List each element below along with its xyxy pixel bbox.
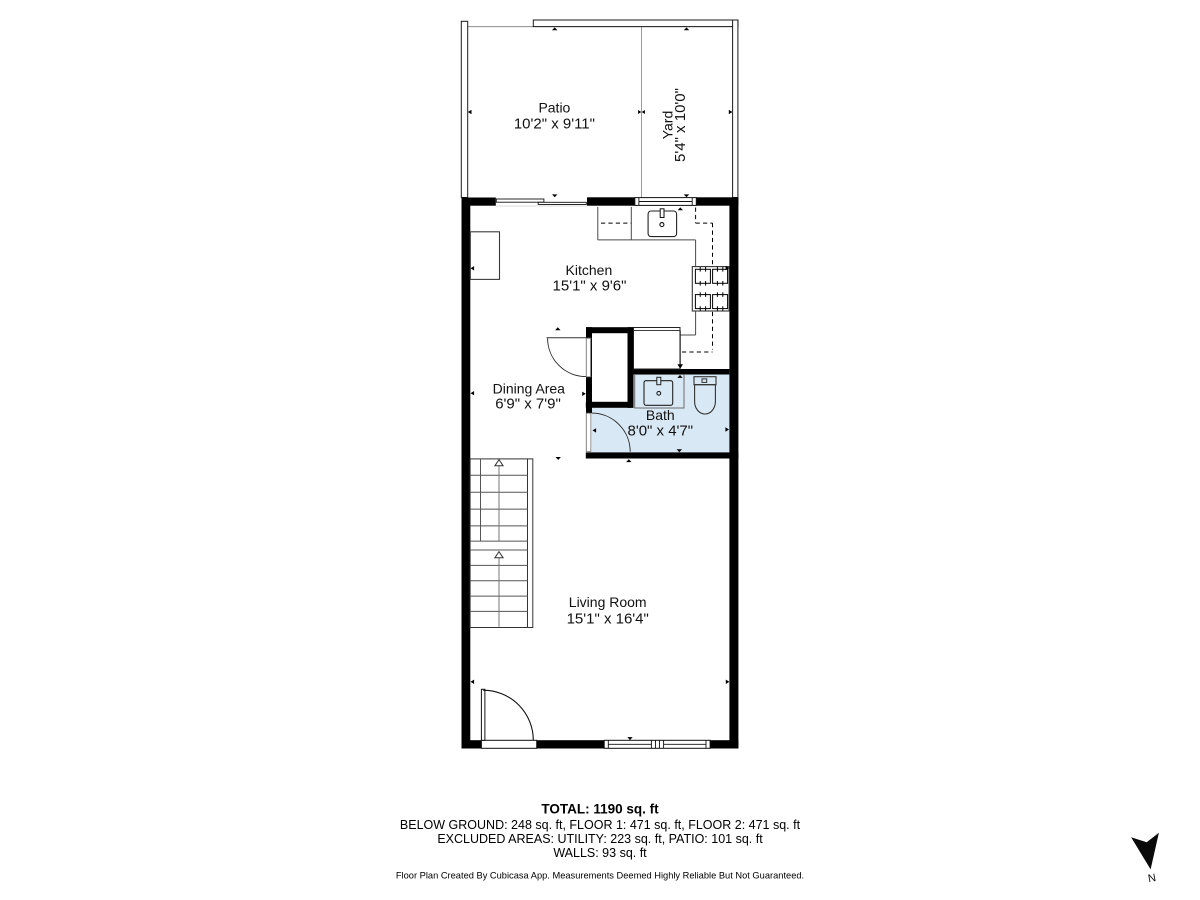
svg-text:N: N [1147, 872, 1157, 885]
svg-text:Dining Area: Dining Area [493, 381, 566, 397]
svg-text:EXCLUDED AREAS: UTILITY: 223 s: EXCLUDED AREAS: UTILITY: 223 sq. ft, PAT… [437, 832, 763, 846]
svg-text:Floor Plan Created By Cubicasa: Floor Plan Created By Cubicasa App. Meas… [396, 871, 804, 881]
svg-text:Living Room: Living Room [569, 594, 647, 610]
svg-text:Patio: Patio [538, 100, 570, 116]
svg-text:8'0" x 4'7": 8'0" x 4'7" [628, 422, 694, 439]
svg-text:TOTAL: 1190 sq. ft: TOTAL: 1190 sq. ft [541, 801, 659, 816]
svg-text:10'2" x 9'11": 10'2" x 9'11" [514, 115, 595, 132]
svg-text:BELOW GROUND: 248 sq. ft, FLOO: BELOW GROUND: 248 sq. ft, FLOOR 1: 471 s… [400, 818, 801, 832]
svg-text:15'1" x 16'4": 15'1" x 16'4" [567, 611, 649, 628]
svg-text:15'1" x 9'6": 15'1" x 9'6" [553, 277, 627, 294]
svg-text:WALLS: 93 sq. ft: WALLS: 93 sq. ft [553, 846, 647, 860]
svg-text:Kitchen: Kitchen [566, 262, 613, 278]
svg-text:Bath: Bath [646, 407, 675, 423]
svg-text:6'9" x 7'9": 6'9" x 7'9" [495, 395, 561, 412]
svg-text:5'4" x 10'0": 5'4" x 10'0" [672, 88, 689, 162]
